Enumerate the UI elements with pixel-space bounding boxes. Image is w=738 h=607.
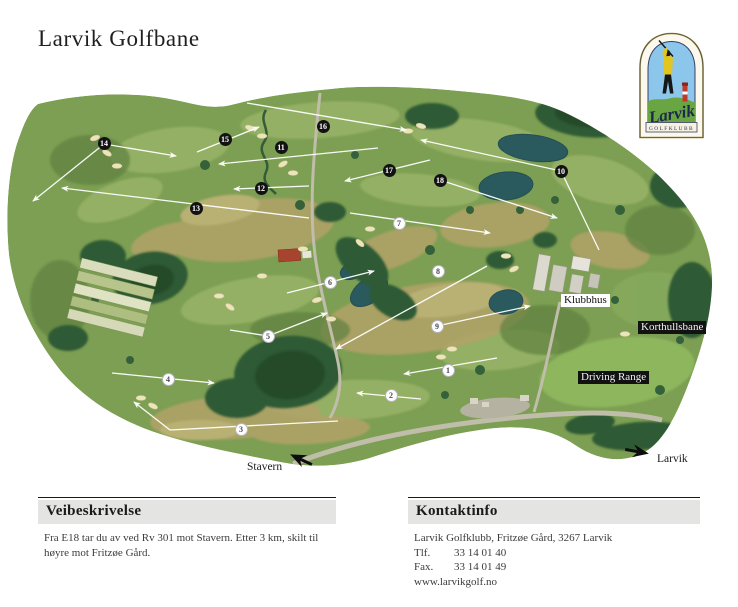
logo-lighthouse-icon <box>682 83 688 102</box>
contact-header-bar: Kontaktinfo <box>408 500 700 524</box>
phone-number: 33 14 01 40 <box>454 547 506 559</box>
contact-heading: Kontaktinfo <box>416 503 700 520</box>
phone-label: Tlf. <box>414 546 454 561</box>
contact-fax-row: Fax.33 14 01 49 <box>414 560 700 575</box>
aerial-photo <box>7 87 716 466</box>
contact-phone-row: Tlf.33 14 01 40 <box>414 546 700 561</box>
club-logo: Larvik GOLFKLUBB <box>636 29 707 141</box>
directions-heading: Veibeskrivelse <box>46 503 336 520</box>
directions-header-bar: Veibeskrivelse <box>38 500 336 524</box>
fax-number: 33 14 01 49 <box>454 561 506 573</box>
section-rule <box>408 497 700 498</box>
contact-address: Larvik Golfklubb, Fritzøe Gård, 3267 Lar… <box>414 531 700 546</box>
fax-label: Fax. <box>414 560 454 575</box>
directions-body: Fra E18 tar du av ved Rv 301 mot Stavern… <box>44 531 336 560</box>
page-title: Larvik Golfbane <box>38 26 200 52</box>
brochure-page: 123456789101112131415161718 KlubbhusKort… <box>0 0 738 607</box>
logo-banner-text: GOLFKLUBB <box>649 126 694 132</box>
section-rule <box>38 497 336 498</box>
directions-section: Veibeskrivelse Fra E18 tar du av ved Rv … <box>38 497 336 560</box>
direction-label-larvik: Larvik <box>657 453 688 465</box>
contact-section: Kontaktinfo Larvik Golfklubb, Fritzøe Gå… <box>408 497 700 589</box>
contact-website: www.larvikgolf.no <box>414 575 700 590</box>
direction-label-stavern: Stavern <box>247 461 282 473</box>
